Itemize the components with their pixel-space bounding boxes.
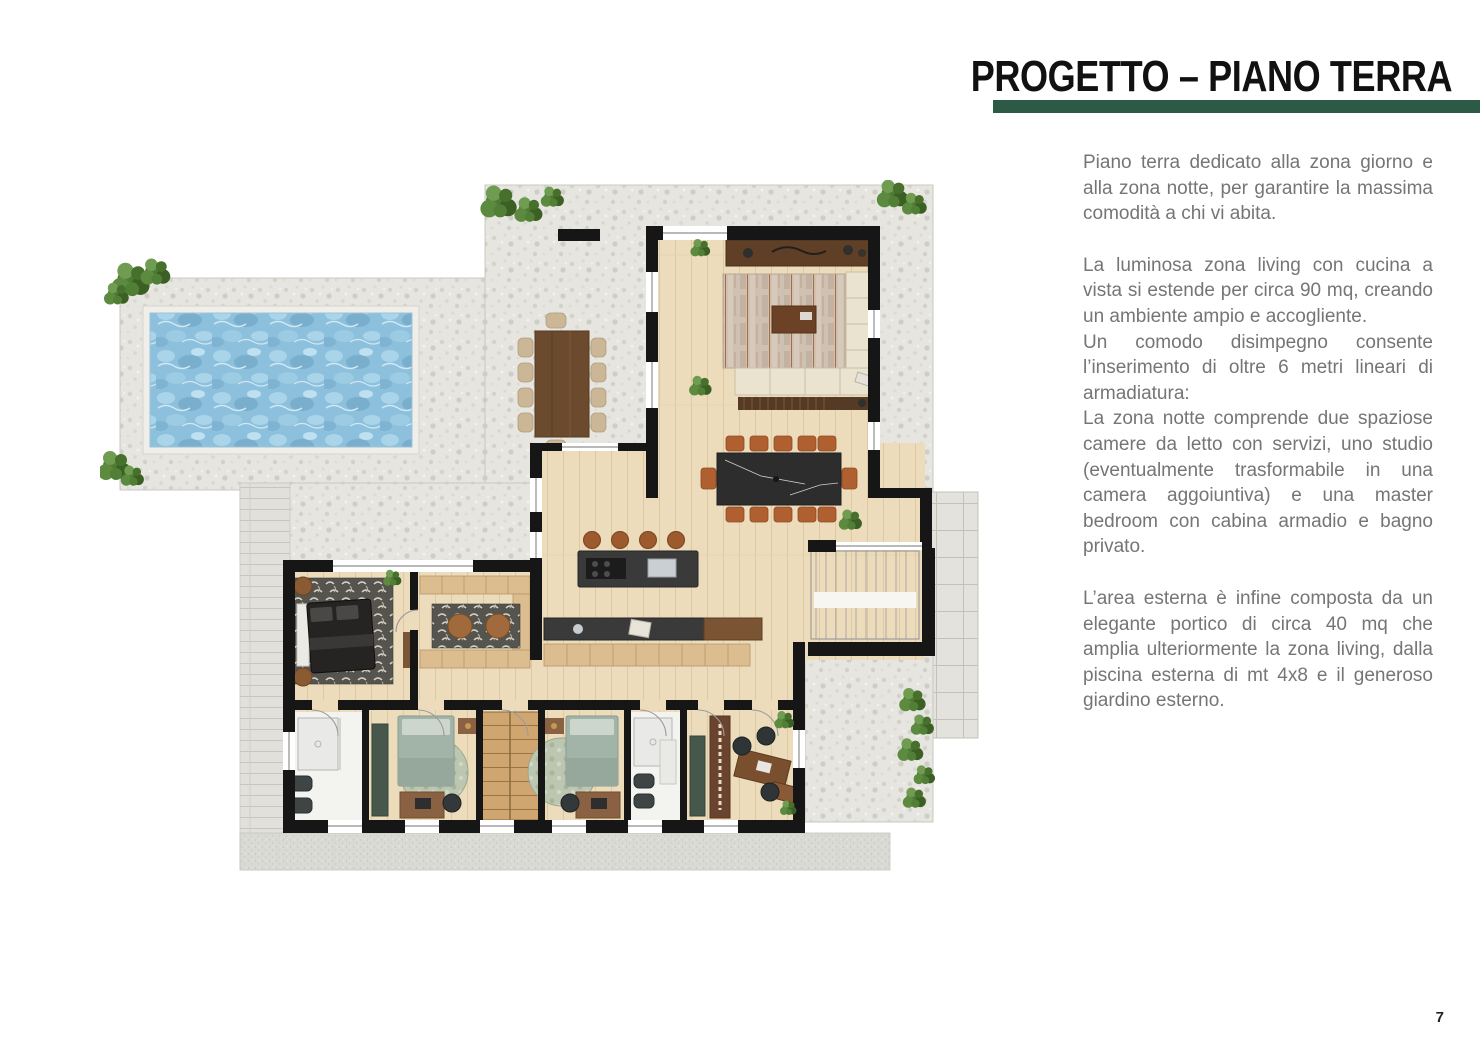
wardrobe-row bbox=[544, 644, 750, 666]
slide-page: PROGETTO – PIANO TERRA bbox=[0, 0, 1480, 1050]
stair-landing bbox=[814, 592, 916, 608]
paragraph-disimpegno: Un comodo disimpegno consente l’inserime… bbox=[1083, 330, 1433, 407]
staircase bbox=[808, 548, 922, 642]
desk-chair bbox=[561, 794, 579, 812]
paragraph-esterno: L’area esterna è infine composta da un e… bbox=[1083, 586, 1433, 714]
paragraph-zona-notte: La zona notte comprende due spaziose cam… bbox=[1083, 406, 1433, 560]
chair bbox=[761, 783, 779, 801]
pouf bbox=[294, 577, 312, 595]
ottoman bbox=[448, 614, 472, 638]
title-accent-bar bbox=[993, 100, 1480, 113]
floor-plan bbox=[100, 180, 980, 880]
desk-chair bbox=[443, 794, 461, 812]
shower bbox=[298, 718, 338, 770]
description-text: Piano terra dedicato alla zona giorno e … bbox=[1083, 150, 1433, 714]
pool-water bbox=[150, 313, 412, 447]
bidet bbox=[634, 794, 654, 808]
master-bed bbox=[307, 599, 376, 673]
island-sink bbox=[648, 559, 676, 577]
chair bbox=[757, 727, 775, 745]
cutting-board bbox=[629, 619, 651, 637]
ottoman bbox=[486, 614, 510, 638]
page-title: PROGETTO – PIANO TERRA bbox=[971, 52, 1452, 102]
outdoor-table bbox=[535, 331, 589, 437]
bed bbox=[566, 716, 618, 786]
bottom-terrace-strip bbox=[240, 833, 890, 870]
page-number: 7 bbox=[1436, 1009, 1444, 1026]
kitchen-counter bbox=[544, 618, 704, 640]
garden-wall-segment bbox=[558, 229, 600, 241]
pouf bbox=[294, 668, 312, 686]
living-room bbox=[723, 240, 874, 410]
wardrobe bbox=[372, 724, 388, 816]
swimming-pool bbox=[143, 306, 419, 454]
vanity bbox=[660, 740, 676, 784]
cabinet bbox=[690, 736, 705, 816]
side-deck-strip bbox=[240, 483, 290, 870]
paragraph-living: La luminosa zona living con cucina a vis… bbox=[1083, 253, 1433, 330]
counter-wood-top bbox=[704, 618, 762, 640]
sofa-console bbox=[738, 397, 874, 410]
toilet bbox=[634, 774, 654, 788]
bed bbox=[398, 716, 454, 786]
paragraph-intro: Piano terra dedicato alla zona giorno e … bbox=[1083, 150, 1433, 227]
chair bbox=[733, 737, 751, 755]
walkin-closet bbox=[420, 576, 530, 668]
